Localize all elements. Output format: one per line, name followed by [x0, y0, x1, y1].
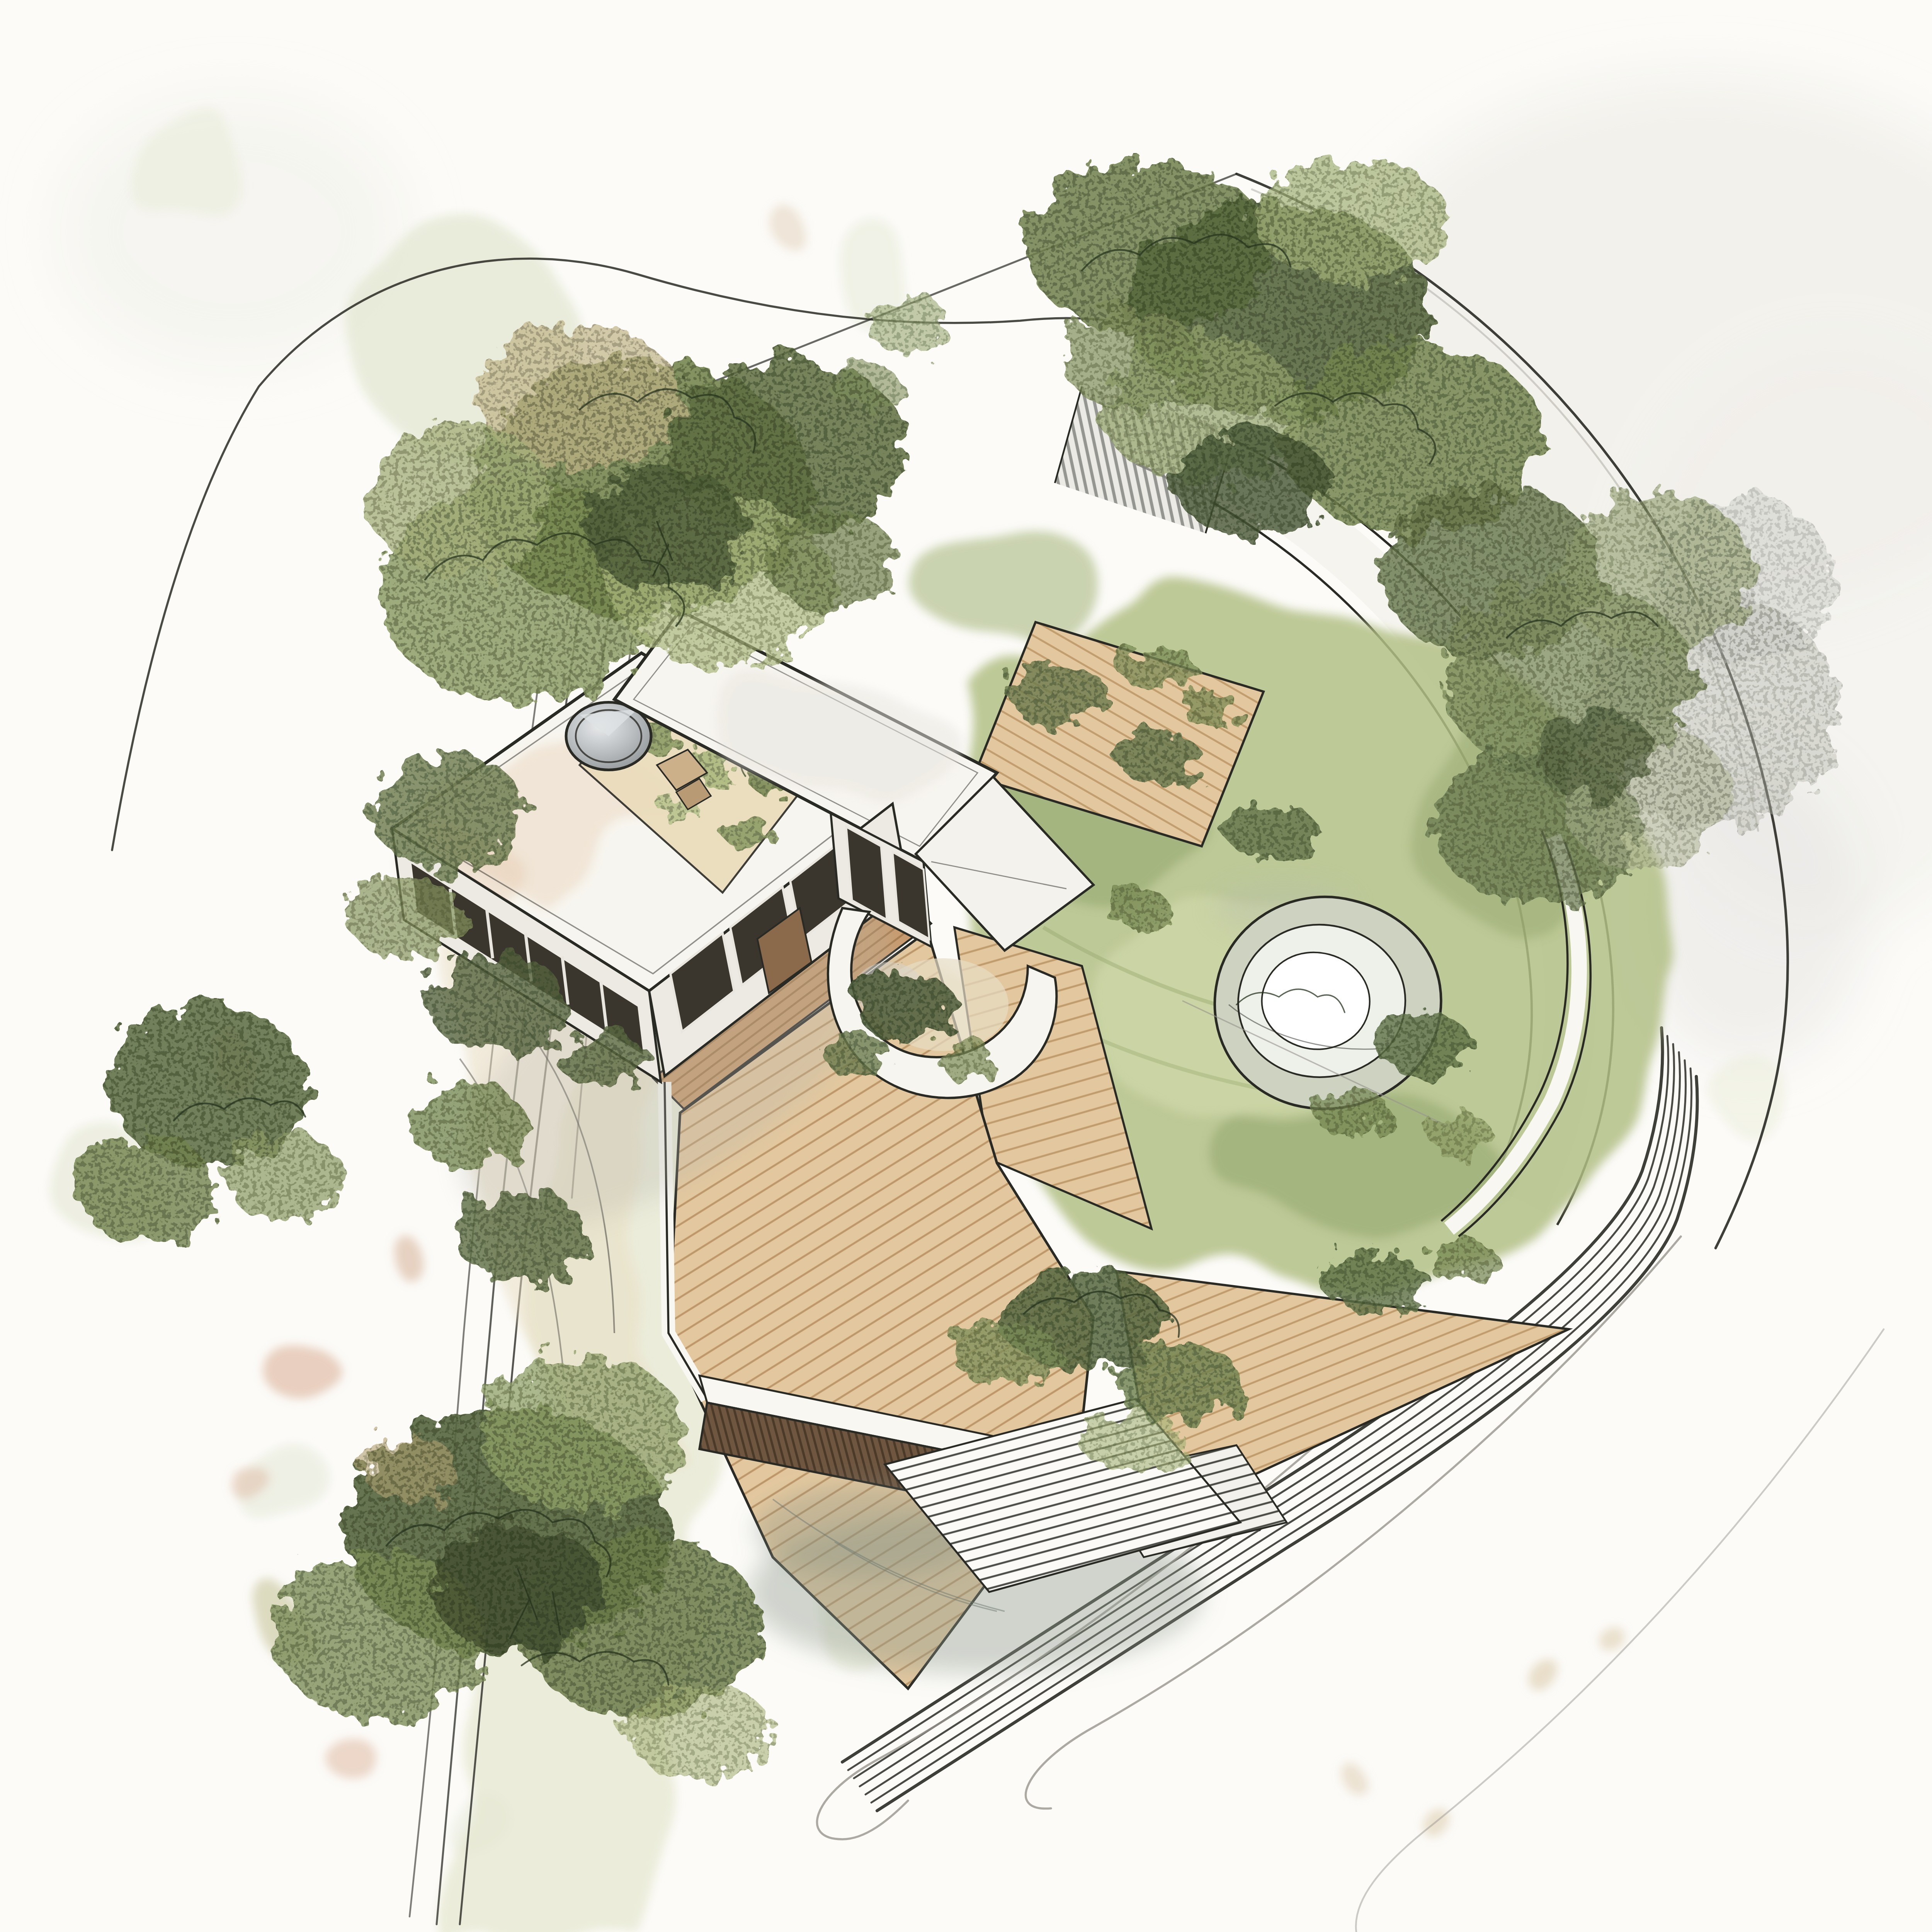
sage-blob	[122, 102, 245, 226]
tan-speckle	[1341, 1766, 1364, 1789]
peach-spot	[232, 1464, 270, 1503]
peach-spot	[771, 211, 806, 245]
roof-shrub	[724, 819, 775, 850]
site-plan-sketch	[0, 0, 1932, 1932]
peach-spot	[321, 1727, 367, 1774]
peach-spot	[261, 1331, 327, 1397]
sketch-page	[0, 0, 1932, 1932]
lawn-patch-north	[908, 526, 1101, 634]
tan-speckle	[1430, 1816, 1461, 1847]
roof-wash	[715, 676, 947, 792]
tan-speckle	[1528, 1660, 1563, 1694]
pool-basin	[1262, 952, 1370, 1049]
peach-spot	[384, 1235, 419, 1269]
sage-blob	[1716, 1059, 1793, 1136]
